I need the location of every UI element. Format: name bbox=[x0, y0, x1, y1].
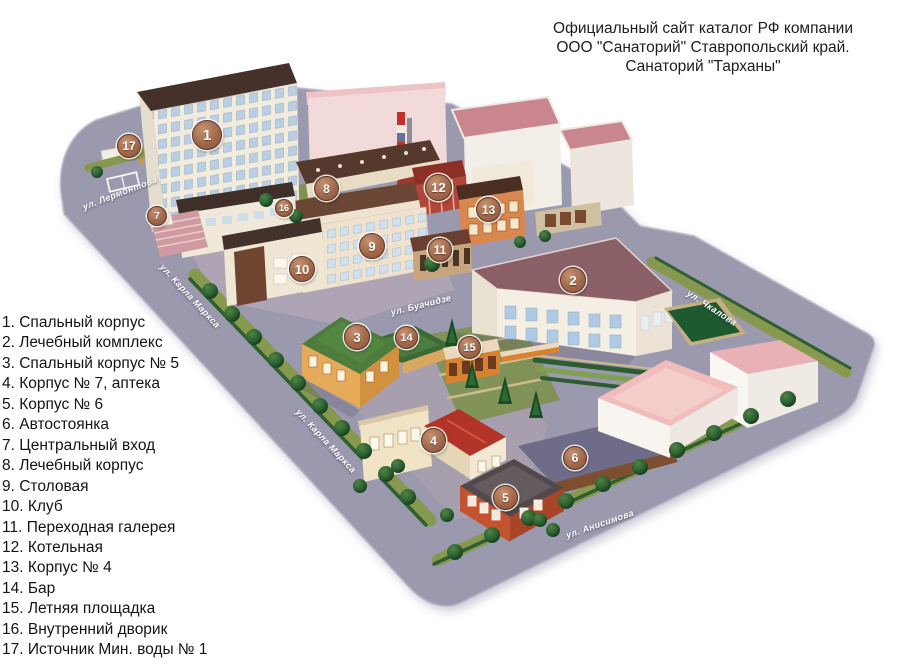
map-marker-5: 5 bbox=[493, 485, 518, 510]
legend-item-10: 10. Клуб bbox=[2, 497, 207, 517]
page-title: Официальный сайт каталог РФ компании ООО… bbox=[505, 19, 900, 76]
map-marker-3: 3 bbox=[344, 324, 370, 350]
map-marker-7: 7 bbox=[147, 206, 167, 226]
map-marker-15: 15 bbox=[458, 336, 481, 359]
map-marker-16: 16 bbox=[275, 199, 293, 217]
legend-item-15: 15. Летняя площадка bbox=[2, 599, 207, 619]
map-marker-8: 8 bbox=[314, 176, 339, 201]
title-line-3: Санаторий "Тарханы" bbox=[505, 57, 900, 76]
legend-item-12: 12. Котельная bbox=[2, 538, 207, 558]
legend-item-6: 6. Автостоянка bbox=[2, 415, 207, 435]
map-marker-4: 4 bbox=[421, 428, 446, 453]
map-marker-17: 17 bbox=[117, 134, 141, 158]
legend-item-4: 4. Корпус № 7, аптека bbox=[2, 374, 207, 394]
map-marker-9: 9 bbox=[359, 233, 385, 259]
club-wood-panel bbox=[234, 246, 267, 306]
legend-item-11: 11. Переходная галерея bbox=[2, 518, 207, 538]
legend-item-1: 1. Спальный корпус bbox=[2, 313, 207, 333]
title-line-1: Официальный сайт каталог РФ компании bbox=[505, 19, 900, 38]
map-marker-14: 14 bbox=[395, 326, 418, 349]
sanatorium-site-plan-page: ул. Лермонтова ул. Карла Маркса ул. Буач… bbox=[0, 0, 900, 666]
legend-item-9: 9. Столовая bbox=[2, 477, 207, 497]
map-marker-1: 1 bbox=[192, 120, 222, 150]
map-marker-10: 10 bbox=[289, 256, 315, 282]
map-marker-12: 12 bbox=[425, 174, 452, 201]
legend-item-13: 13. Корпус № 4 bbox=[2, 558, 207, 578]
map-legend: 1. Спальный корпус 2. Лечебный комплекс … bbox=[2, 313, 207, 661]
legend-item-7: 7. Центральный вход bbox=[2, 436, 207, 456]
map-marker-11: 11 bbox=[428, 238, 452, 262]
legend-item-8: 8. Лечебный корпус bbox=[2, 456, 207, 476]
legend-item-2: 2. Лечебный комплекс bbox=[2, 333, 207, 353]
legend-item-17: 17. Источник Мин. воды № 1 bbox=[2, 640, 207, 660]
title-line-2: ООО "Санаторий" Ставропольский край. bbox=[505, 38, 900, 57]
legend-item-16: 16. Внутренний дворик bbox=[2, 620, 207, 640]
legend-item-3: 3. Спальный корпус № 5 bbox=[2, 354, 207, 374]
map-marker-2: 2 bbox=[560, 267, 586, 293]
legend-item-14: 14. Бар bbox=[2, 579, 207, 599]
map-marker-13: 13 bbox=[476, 197, 501, 222]
map-marker-6: 6 bbox=[563, 446, 587, 470]
legend-item-5: 5. Корпус № 6 bbox=[2, 395, 207, 415]
